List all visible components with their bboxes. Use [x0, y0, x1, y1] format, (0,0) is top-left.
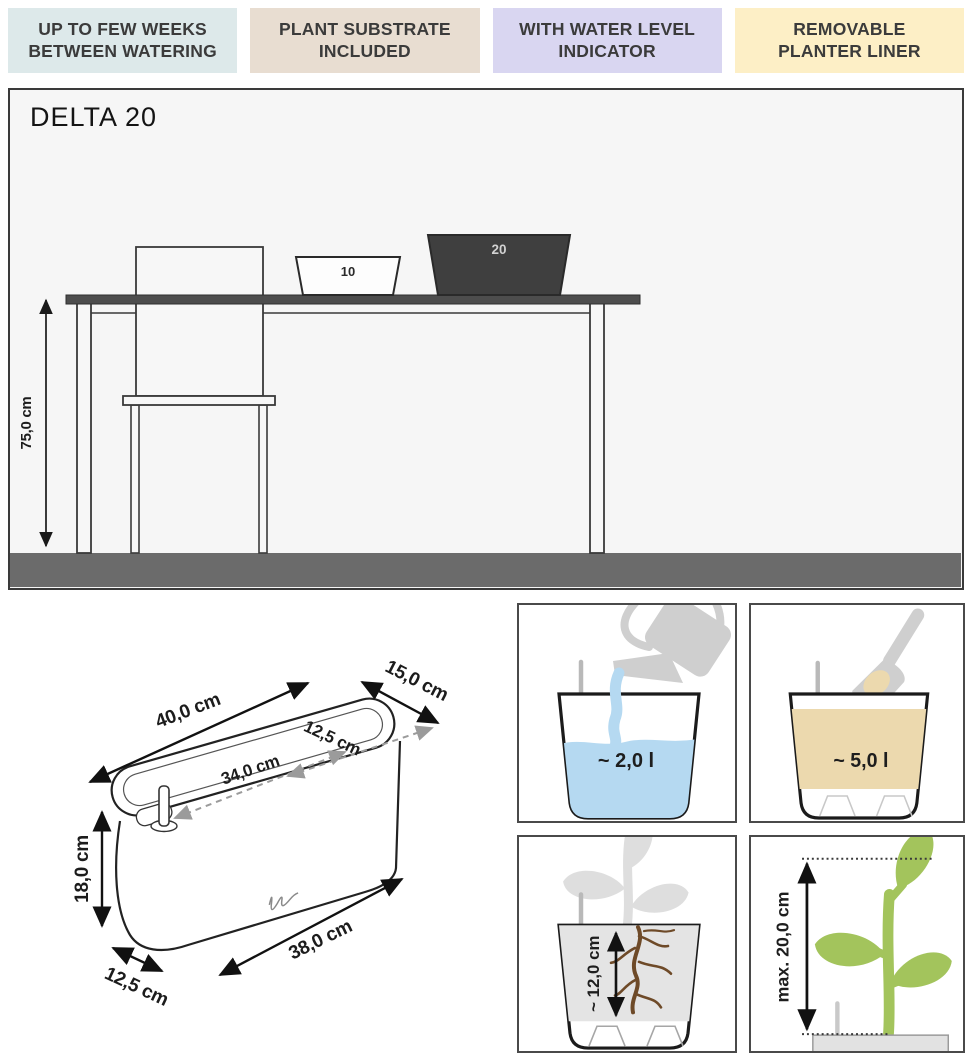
- banner-substrate-included: PLANT SUBSTRATE INCLUDED: [250, 8, 479, 73]
- panel-max-plant-height: max. 20,0 cm: [749, 835, 965, 1053]
- dimension-drawing: 34,0 cm 12,5 cm 40,0 cm 15,0 cm 18,0 cm …: [40, 630, 500, 1040]
- floor: [10, 553, 961, 587]
- chair-leg-right: [259, 405, 267, 553]
- max-plant-height-label: max. 20,0 cm: [772, 891, 792, 1002]
- substrate-volume-label: ~ 5,0 l: [833, 750, 888, 772]
- table-leg-right: [590, 303, 604, 553]
- watering-can-icon: [613, 605, 735, 683]
- banner-water-level-indicator-label: WITH WATER LEVEL INDICATOR: [519, 19, 695, 62]
- table-leg-left: [77, 303, 91, 553]
- planter-20: 20: [428, 235, 570, 295]
- soil-fill: [555, 925, 703, 1021]
- panel-root-depth: ~ 12,0 cm: [517, 835, 737, 1053]
- banner-removable-liner-label: REMOVABLE PLANTER LINER: [778, 19, 921, 62]
- table-height-dimension: 75,0 cm: [18, 300, 46, 546]
- feature-banners: UP TO FEW WEEKS BETWEEN WATERING PLANT S…: [8, 8, 964, 73]
- panel-water-volume: ~ 2,0 l: [517, 603, 737, 823]
- panel-substrate-volume: ~ 5,0 l: [749, 603, 965, 823]
- green-plant: [812, 837, 956, 1035]
- room-scene: 10 20 75,0 cm: [10, 90, 961, 587]
- table-height-label: 75,0 cm: [18, 397, 35, 450]
- table-top: [66, 295, 640, 304]
- banner-removable-liner: REMOVABLE PLANTER LINER: [735, 8, 964, 73]
- root-depth-label: ~ 12,0 cm: [584, 936, 603, 1012]
- substrate-volume-graphic: ~ 5,0 l: [751, 605, 963, 821]
- max-plant-height-graphic: max. 20,0 cm: [751, 837, 963, 1051]
- banner-watering-interval: UP TO FEW WEEKS BETWEEN WATERING: [8, 8, 237, 73]
- height-label: 18,0 cm: [72, 835, 93, 903]
- chair-backrest: [136, 247, 263, 396]
- water-volume-graphic: ~ 2,0 l: [519, 605, 735, 821]
- product-title: DELTA 20: [30, 102, 157, 133]
- planter-10: 10: [296, 257, 400, 295]
- water-stream: [614, 673, 619, 747]
- chair: [123, 247, 275, 553]
- pot-rim: [813, 1035, 948, 1051]
- banner-water-level-indicator: WITH WATER LEVEL INDICATOR: [493, 8, 722, 73]
- chair-seat: [123, 396, 275, 405]
- banner-substrate-included-label: PLANT SUBSTRATE INCLUDED: [279, 19, 451, 62]
- planter-10-label: 10: [341, 264, 355, 279]
- chair-leg-left: [131, 405, 139, 553]
- planter-20-label: 20: [491, 242, 506, 257]
- water-volume-label: ~ 2,0 l: [598, 750, 654, 772]
- root-depth-graphic: ~ 12,0 cm: [519, 837, 735, 1051]
- banner-watering-interval-label: UP TO FEW WEEKS BETWEEN WATERING: [28, 19, 217, 62]
- room-scene-frame: 10 20 75,0 cm DELTA 20: [8, 88, 964, 590]
